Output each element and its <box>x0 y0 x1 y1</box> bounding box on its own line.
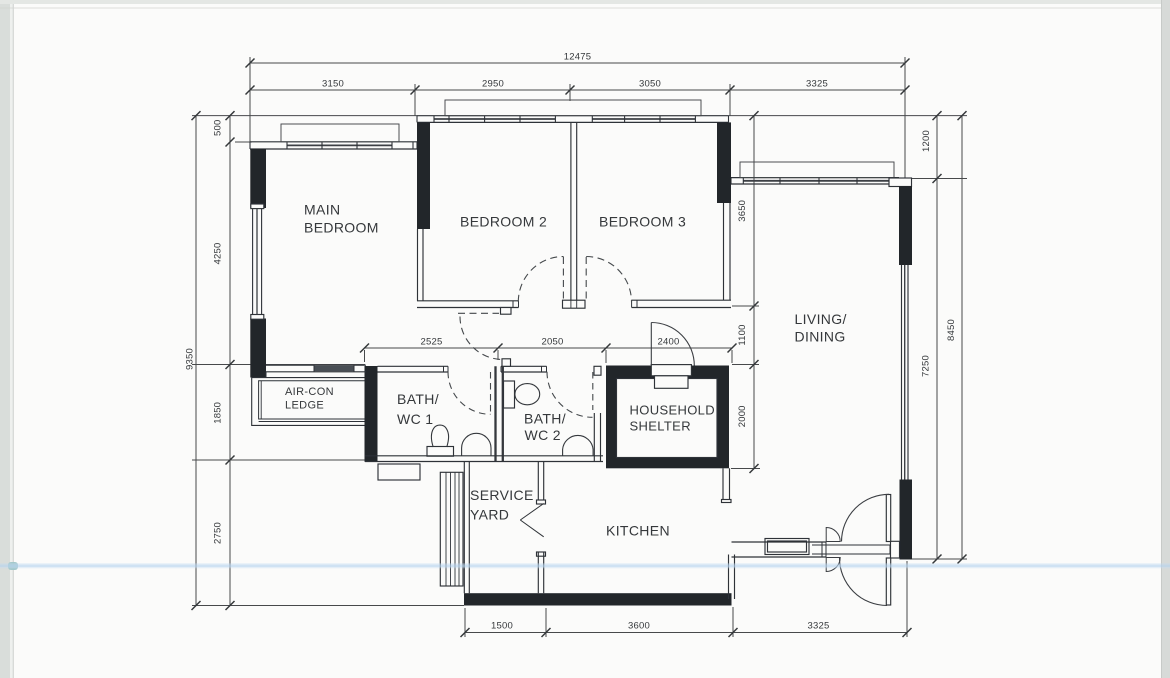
svg-text:12475: 12475 <box>564 52 591 63</box>
svg-text:3325: 3325 <box>806 79 828 90</box>
svg-text:LEDGE: LEDGE <box>285 400 324 412</box>
svg-text:KITCHEN: KITCHEN <box>606 523 670 539</box>
svg-text:DINING: DINING <box>795 329 846 345</box>
svg-text:1200: 1200 <box>921 130 932 152</box>
svg-text:1850: 1850 <box>213 402 224 424</box>
svg-text:BATH/: BATH/ <box>524 411 566 427</box>
svg-text:HOUSEHOLD: HOUSEHOLD <box>630 403 716 418</box>
svg-text:WC 2: WC 2 <box>525 427 561 443</box>
svg-text:SERVICE: SERVICE <box>470 487 534 503</box>
svg-text:3325: 3325 <box>808 621 830 632</box>
svg-text:9350: 9350 <box>185 348 196 370</box>
svg-text:AIR-CON: AIR-CON <box>285 386 334 398</box>
svg-text:YARD: YARD <box>470 506 509 522</box>
svg-text:1500: 1500 <box>491 621 513 632</box>
svg-text:MAIN: MAIN <box>304 202 340 218</box>
svg-text:WC 1: WC 1 <box>397 411 433 427</box>
svg-text:7250: 7250 <box>921 355 932 377</box>
svg-text:3150: 3150 <box>322 79 344 90</box>
svg-text:2000: 2000 <box>737 405 748 427</box>
svg-text:BEDROOM 2: BEDROOM 2 <box>460 214 547 230</box>
svg-text:SHELTER: SHELTER <box>630 419 691 434</box>
svg-text:3650: 3650 <box>737 200 748 222</box>
svg-text:4250: 4250 <box>213 243 224 265</box>
svg-text:BATH/: BATH/ <box>397 391 439 407</box>
svg-text:8450: 8450 <box>946 319 957 341</box>
svg-text:3050: 3050 <box>639 79 661 90</box>
svg-text:2950: 2950 <box>482 79 504 90</box>
svg-text:BEDROOM 3: BEDROOM 3 <box>599 214 686 230</box>
svg-text:LIVING/: LIVING/ <box>795 311 847 327</box>
svg-text:2050: 2050 <box>542 337 564 348</box>
svg-text:2750: 2750 <box>213 522 224 544</box>
svg-text:2525: 2525 <box>421 337 443 348</box>
svg-text:3600: 3600 <box>628 621 650 632</box>
svg-text:1100: 1100 <box>737 324 748 345</box>
svg-text:2400: 2400 <box>658 337 680 348</box>
svg-text:BEDROOM: BEDROOM <box>304 220 379 236</box>
svg-text:500: 500 <box>213 120 224 136</box>
